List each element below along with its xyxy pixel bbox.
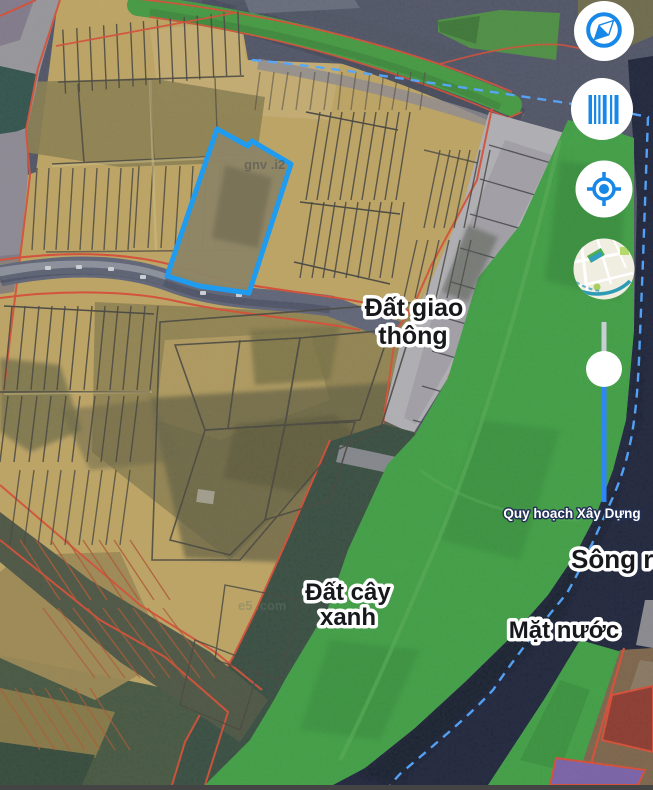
svg-text:Đất cây: Đất cây [305,579,391,606]
svg-text:e5 .com: e5 .com [238,598,286,613]
svg-text:Sông rạ: Sông rạ [571,544,653,574]
svg-text:Mặt nước: Mặt nước [509,617,619,644]
svg-text:thông: thông [378,322,447,350]
svg-text:gnv .i2: gnv .i2 [244,157,285,172]
svg-text:Đất giao: Đất giao [365,294,464,322]
svg-text:xanh: xanh [320,604,376,631]
svg-text:Quy hoạch Xây Dựng: Quy hoạch Xây Dựng [503,506,640,521]
